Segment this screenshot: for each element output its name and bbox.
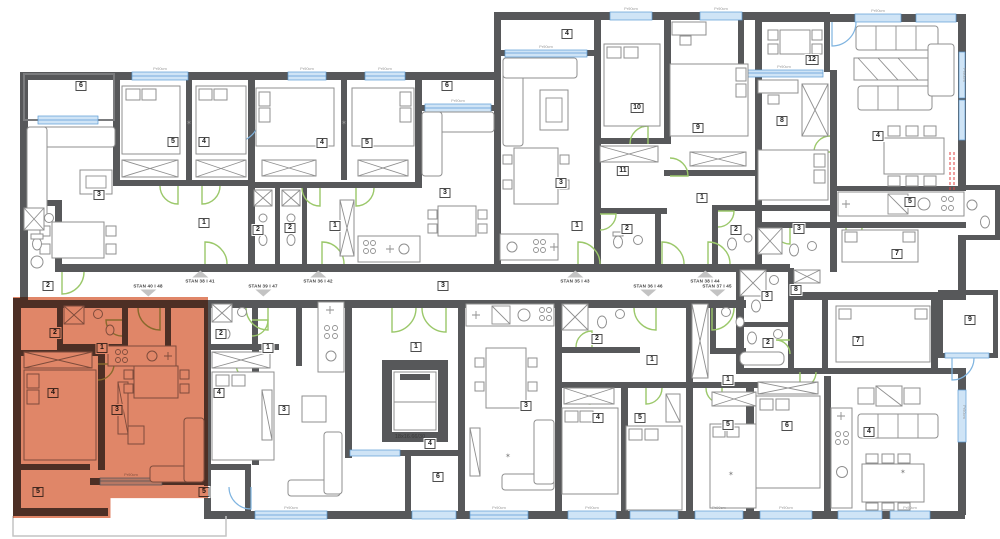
- window-label: Pr90cm: [284, 505, 298, 510]
- radiator-mark: ✶: [505, 452, 511, 460]
- window-label: Pr90cm: [962, 405, 967, 419]
- window-label: Pr90cm: [300, 66, 314, 71]
- window-label: Pr90cm: [124, 472, 138, 477]
- window-label: Pr90cm: [378, 66, 392, 71]
- radiator-mark: ✶: [728, 470, 734, 478]
- window-label: Pr90cm: [962, 68, 967, 82]
- floor-plan-drawing: ✶ ✶ ✶ ✶ ✶ ✶ 18x16.66/30 Pr90cm Pr90cm Pr…: [0, 0, 1000, 539]
- window-label: Pr90cm: [779, 505, 793, 510]
- floor-plan: ✶ ✶ ✶ ✶ ✶ ✶ 18x16.66/30 Pr90cm Pr90cm Pr…: [0, 0, 1000, 539]
- window-label: Pr90cm: [585, 505, 599, 510]
- radiator-mark: ✶: [900, 468, 906, 476]
- window-label: Pr90cm: [539, 44, 553, 49]
- stairs-dimension: 18x16.66/30: [395, 434, 425, 440]
- window-label: Pr90cm: [451, 98, 465, 103]
- window-label: Pr90cm: [492, 505, 506, 510]
- window-label: Pr90cm: [903, 505, 917, 510]
- radiator-mark: ✶: [114, 402, 120, 410]
- window-label: Pr90cm: [777, 64, 791, 69]
- window-label: Pr90cm: [871, 8, 885, 13]
- window-label: Pr90cm: [624, 6, 638, 11]
- window-label: Pr90cm: [712, 505, 726, 510]
- window-label: Pr90cm: [714, 6, 728, 11]
- radiator-mark: ✶: [186, 119, 192, 127]
- radiator-mark: ✶: [341, 119, 347, 127]
- window-label: Pr90cm: [153, 66, 167, 71]
